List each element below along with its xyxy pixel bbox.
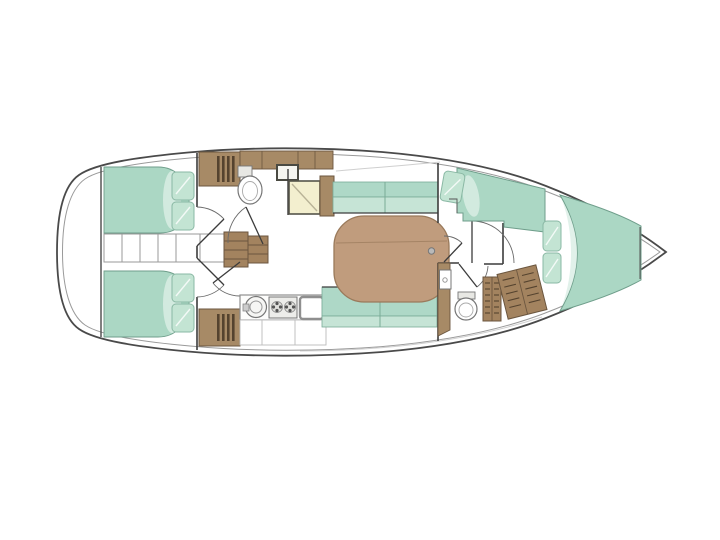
companionway-steps [224, 232, 268, 267]
yacht-floor-plan [0, 0, 720, 540]
mast-post [428, 248, 434, 254]
galley-lower-cabinets [240, 320, 326, 345]
slatted-locker-upright [483, 277, 501, 321]
salon [322, 182, 449, 327]
nav-station [289, 176, 334, 216]
step-upper [248, 236, 268, 263]
stove-burner-2 [285, 302, 296, 313]
aft-cabin-starboard [104, 271, 194, 337]
sink-faucet [243, 304, 249, 311]
nav-side-cabinet [320, 176, 334, 216]
square-sink [300, 297, 323, 319]
stove-burner-1 [272, 302, 283, 313]
step-lower [224, 232, 248, 267]
toilet-cistern [238, 166, 252, 177]
engine-compartment [104, 234, 224, 262]
salon-table [334, 216, 449, 302]
aft-cabin-port [104, 167, 194, 233]
settee-port [333, 182, 438, 213]
toilet-bowl [238, 176, 262, 204]
fwd-head-sink [440, 270, 452, 289]
boat-floor-plan-page [0, 0, 720, 540]
